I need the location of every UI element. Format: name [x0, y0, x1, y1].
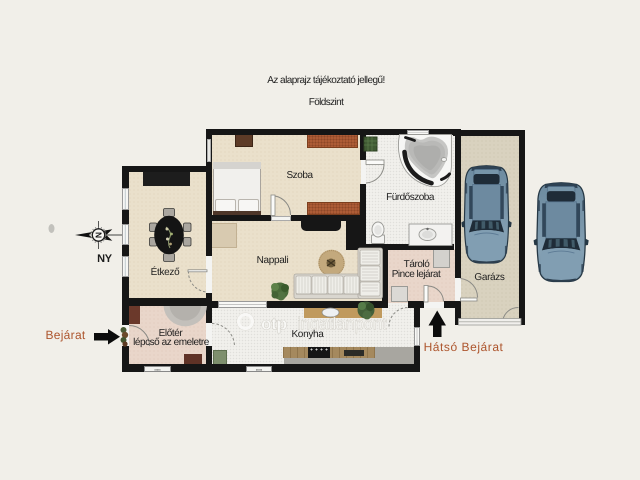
svg-text:otp: otp	[261, 314, 287, 334]
svg-text:N: N	[94, 232, 104, 238]
